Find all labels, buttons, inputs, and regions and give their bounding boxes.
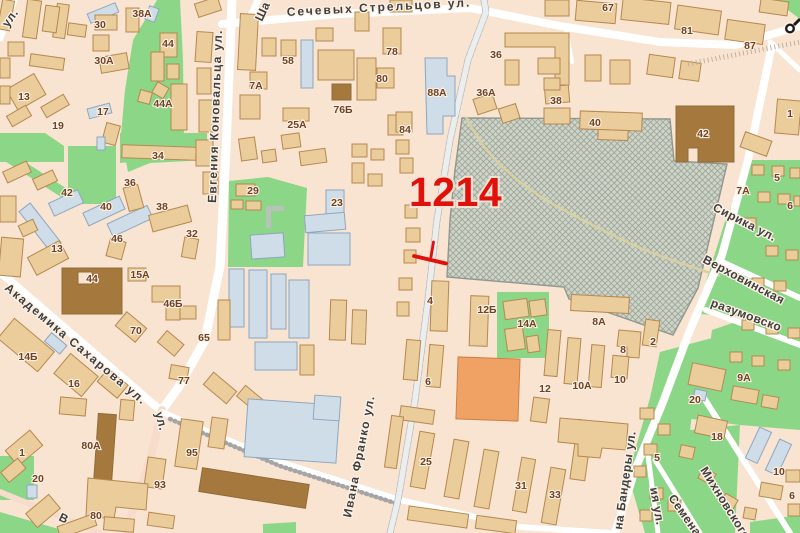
svg-text:44: 44	[86, 273, 98, 285]
svg-text:93: 93	[154, 479, 166, 491]
svg-text:13: 13	[18, 91, 30, 103]
svg-text:46Б: 46Б	[163, 298, 183, 310]
svg-text:10А: 10А	[572, 380, 592, 392]
svg-text:36: 36	[490, 49, 502, 61]
svg-text:17: 17	[97, 106, 109, 118]
svg-text:87: 87	[744, 40, 756, 52]
svg-text:14Б: 14Б	[18, 351, 38, 363]
svg-text:44А: 44А	[153, 98, 173, 110]
svg-text:25А: 25А	[287, 119, 307, 131]
svg-text:65: 65	[198, 332, 210, 344]
svg-text:33: 33	[549, 489, 561, 501]
svg-text:16: 16	[68, 378, 80, 390]
svg-text:84: 84	[399, 124, 411, 136]
svg-text:12: 12	[539, 383, 551, 395]
svg-text:29: 29	[247, 185, 259, 197]
svg-text:30: 30	[94, 19, 106, 31]
svg-text:81: 81	[681, 25, 693, 37]
svg-text:1: 1	[787, 108, 793, 120]
svg-text:23: 23	[331, 197, 343, 209]
svg-text:8: 8	[620, 344, 626, 356]
svg-text:32: 32	[186, 228, 198, 240]
svg-text:95: 95	[186, 447, 198, 459]
svg-text:5: 5	[774, 172, 780, 184]
svg-text:88А: 88А	[427, 87, 447, 99]
svg-text:40: 40	[100, 201, 112, 213]
svg-text:38А: 38А	[132, 8, 152, 20]
svg-text:10: 10	[773, 466, 785, 478]
svg-text:19: 19	[52, 120, 64, 132]
svg-text:38: 38	[156, 201, 168, 213]
svg-text:18: 18	[711, 431, 723, 443]
svg-text:20: 20	[689, 394, 701, 406]
svg-text:14А: 14А	[517, 318, 537, 330]
svg-text:77: 77	[178, 375, 190, 387]
svg-text:44: 44	[162, 38, 174, 50]
svg-text:46: 46	[111, 233, 123, 245]
svg-text:25: 25	[420, 456, 432, 468]
svg-text:80: 80	[376, 73, 388, 85]
svg-text:40: 40	[589, 117, 601, 129]
svg-text:78: 78	[386, 46, 398, 58]
svg-text:15А: 15А	[130, 269, 150, 281]
svg-text:80А: 80А	[81, 440, 101, 452]
svg-text:70: 70	[130, 325, 142, 337]
svg-text:13: 13	[51, 243, 63, 255]
svg-text:67: 67	[602, 2, 614, 14]
svg-text:76Б: 76Б	[333, 104, 353, 116]
svg-text:5: 5	[654, 452, 660, 464]
svg-text:36А: 36А	[476, 87, 496, 99]
svg-text:58: 58	[282, 55, 294, 67]
svg-text:7А: 7А	[736, 185, 750, 197]
svg-text:6: 6	[789, 490, 795, 502]
svg-text:6: 6	[425, 376, 431, 388]
svg-text:34: 34	[152, 150, 164, 162]
svg-text:80: 80	[90, 510, 102, 522]
svg-text:20: 20	[32, 473, 44, 485]
svg-text:31: 31	[515, 480, 527, 492]
svg-text:38: 38	[550, 95, 562, 107]
svg-text:2: 2	[650, 336, 656, 348]
svg-text:6: 6	[787, 200, 793, 212]
svg-text:42: 42	[61, 187, 73, 199]
svg-text:1214: 1214	[409, 169, 502, 215]
svg-text:9А: 9А	[737, 372, 751, 384]
svg-text:42: 42	[697, 128, 709, 140]
svg-text:12Б: 12Б	[477, 304, 497, 316]
svg-text:4: 4	[427, 295, 433, 307]
svg-text:10: 10	[614, 374, 626, 386]
svg-text:36: 36	[124, 177, 136, 189]
svg-text:30А: 30А	[94, 55, 114, 67]
svg-text:1: 1	[19, 447, 25, 459]
svg-text:8А: 8А	[592, 316, 606, 328]
svg-text:7А: 7А	[249, 80, 263, 92]
